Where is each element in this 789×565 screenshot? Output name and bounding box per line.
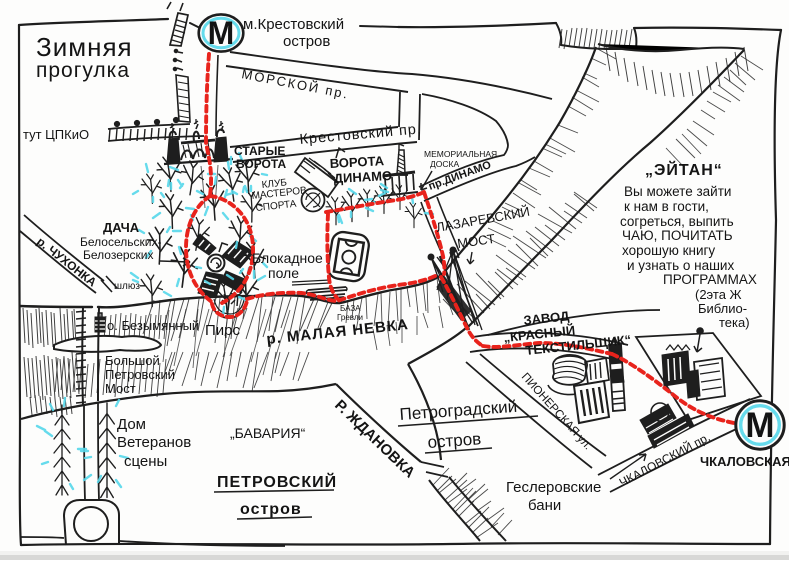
svg-text:ДИНАМО: ДИНАМО <box>333 168 392 186</box>
svg-text:о. Безымянный: о. Безымянный <box>107 318 199 333</box>
svg-text:ЧАЮ, ПОЧИТАТЬ: ЧАЮ, ПОЧИТАТЬ <box>622 228 733 243</box>
svg-text:Белозерских: Белозерских <box>83 248 154 262</box>
svg-text:СТАРЫЕ: СТАРЫЕ <box>234 144 285 158</box>
svg-text:ПРОГРАММАХ: ПРОГРАММАХ <box>663 272 757 287</box>
svg-text:остров: остров <box>283 33 330 50</box>
svg-text:тут ЦПКиО: тут ЦПКиО <box>23 127 89 142</box>
svg-text:ДОСКА: ДОСКА <box>430 159 459 169</box>
svg-text:М: М <box>745 406 774 445</box>
svg-text:ВОРОТА: ВОРОТА <box>236 157 286 171</box>
svg-text:ЧКАЛОВСКАЯ: ЧКАЛОВСКАЯ <box>700 454 789 469</box>
svg-text:ДАЧА: ДАЧА <box>103 220 140 235</box>
svg-text:Гревли: Гревли <box>337 313 363 322</box>
svg-text:Вы можете зайти: Вы можете зайти <box>624 184 731 199</box>
svg-text:Белосельских-: Белосельских- <box>80 235 161 249</box>
svg-text:бани: бани <box>528 497 561 514</box>
svg-text:Петровский: Петровский <box>105 367 175 382</box>
svg-text:Пирс: Пирс <box>205 322 241 339</box>
svg-text:хорошую книгу: хорошую книгу <box>622 243 715 258</box>
svg-text:остров: остров <box>240 501 302 518</box>
svg-text:М: М <box>208 15 235 51</box>
svg-text:Геслеровские: Геслеровские <box>506 479 601 496</box>
svg-text:и узнать о наших: и узнать о наших <box>627 258 734 273</box>
svg-text:тека): тека) <box>719 315 750 330</box>
svg-text:сцены: сцены <box>124 453 167 470</box>
svg-text:Большой: Большой <box>105 353 160 368</box>
svg-text:Зимняя: Зимняя <box>36 32 133 62</box>
svg-text:„ЭЙТАН“: „ЭЙТАН“ <box>645 160 723 179</box>
svg-text:БАЗА: БАЗА <box>340 304 361 313</box>
svg-text:Блокадное: Блокадное <box>252 250 323 266</box>
svg-text:прогулка: прогулка <box>36 59 130 82</box>
svg-text:м.Крестовский: м.Крестовский <box>243 16 344 33</box>
svg-text:ПЕТРОВСКИЙ: ПЕТРОВСКИЙ <box>217 472 337 491</box>
svg-text:к нам в гости,: к нам в гости, <box>624 199 709 214</box>
svg-text:шлюз: шлюз <box>114 281 140 292</box>
svg-text:Мост: Мост <box>105 381 136 396</box>
svg-text:согреться, выпить: согреться, выпить <box>620 214 734 229</box>
svg-text:поле: поле <box>268 265 299 281</box>
svg-text:Ветеранов: Ветеранов <box>117 434 191 451</box>
svg-text:„БАВАРИЯ“: „БАВАРИЯ“ <box>230 425 306 441</box>
svg-text:Дом: Дом <box>117 416 146 433</box>
svg-text:Библио-: Библио- <box>698 301 747 316</box>
svg-text:(2эта Ж: (2эта Ж <box>695 287 742 302</box>
svg-text:МЕМОРИАЛЬНАЯ: МЕМОРИАЛЬНАЯ <box>424 149 497 159</box>
